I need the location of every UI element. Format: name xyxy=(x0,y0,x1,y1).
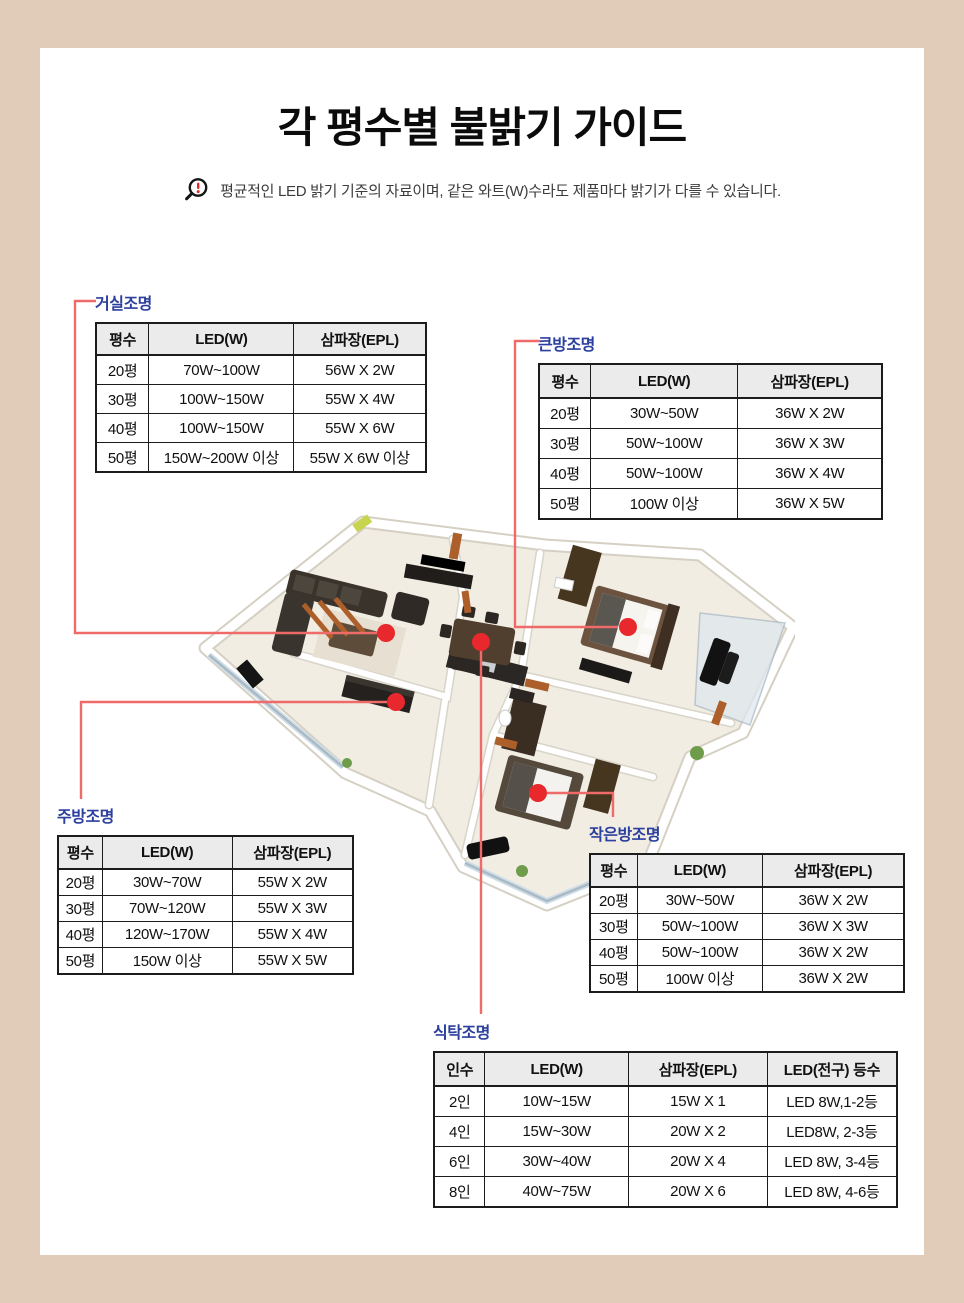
table-cell: 36W X 3W xyxy=(738,429,882,459)
table-cell: 55W X 6W 이상 xyxy=(294,443,426,473)
table-cell: 6인 xyxy=(434,1147,485,1177)
header-cell: 삼파장(EPL) xyxy=(738,364,882,398)
table-cell: 36W X 2W xyxy=(763,940,904,966)
header-cell: LED(W) xyxy=(637,854,763,887)
header-cell: 인수 xyxy=(434,1052,485,1086)
table-cell: 150W 이상 xyxy=(102,948,232,975)
header-cell: LED(W) xyxy=(102,836,232,869)
table-header-row: 인수 LED(W) 삼파장(EPL) LED(전구) 등수 xyxy=(434,1052,897,1086)
dining-table-label: 식탁조명 xyxy=(433,1019,898,1043)
table-cell: 50평 xyxy=(96,443,149,473)
small-room-table-label: 작은방조명 xyxy=(589,821,905,845)
table-cell: 55W X 3W xyxy=(232,896,353,922)
table-cell: 30W~50W xyxy=(637,887,763,914)
kitchen-table-label: 주방조명 xyxy=(57,803,354,827)
table-cell: 150W~200W 이상 xyxy=(149,443,294,473)
table-cell: 36W X 2W xyxy=(763,887,904,914)
table-cell: 10W~15W xyxy=(485,1086,629,1117)
big-room-table: 평수 LED(W) 삼파장(EPL) 20평30W~50W36W X 2W 30… xyxy=(538,363,883,520)
kitchen-table-block: 주방조명 평수 LED(W) 삼파장(EPL) 20평30W~70W55W X … xyxy=(57,803,354,975)
table-cell: 30W~40W xyxy=(485,1147,629,1177)
table-cell: 70W~120W xyxy=(102,896,232,922)
table-cell: 36W X 4W xyxy=(738,459,882,489)
table-cell: 100W 이상 xyxy=(637,966,763,993)
notice-text: 평균적인 LED 밝기 기준의 자료이며, 같은 와트(W)수라도 제품마다 밝… xyxy=(220,180,781,201)
living-table-label: 거실조명 xyxy=(95,290,427,314)
table-row: 8인40W~75W20W X 6LED 8W, 4-6등 xyxy=(434,1177,897,1208)
table-cell: 55W X 4W xyxy=(294,385,426,414)
header-cell: LED(W) xyxy=(590,364,737,398)
table-cell: 50W~100W xyxy=(637,940,763,966)
table-row: 40평50W~100W36W X 4W xyxy=(539,459,882,489)
table-cell: 30평 xyxy=(539,429,590,459)
table-cell: 100W~150W xyxy=(149,414,294,443)
header-cell: 평수 xyxy=(96,323,149,355)
table-cell: LED8W, 2-3등 xyxy=(767,1117,897,1147)
table-cell: 50W~100W xyxy=(590,429,737,459)
table-cell: 30W~50W xyxy=(590,398,737,429)
table-row: 4인15W~30W20W X 2LED8W, 2-3등 xyxy=(434,1117,897,1147)
table-row: 30평100W~150W55W X 4W xyxy=(96,385,426,414)
header-cell: 삼파장(EPL) xyxy=(294,323,426,355)
small-room-table-block: 작은방조명 평수 LED(W) 삼파장(EPL) 20평30W~50W36W X… xyxy=(589,821,905,993)
header-cell: 삼파장(EPL) xyxy=(763,854,904,887)
table-cell: 2인 xyxy=(434,1086,485,1117)
table-cell: 30평 xyxy=(590,914,637,940)
table-cell: 8인 xyxy=(434,1177,485,1208)
table-cell: 20W X 6 xyxy=(628,1177,767,1208)
header-cell: 삼파장(EPL) xyxy=(232,836,353,869)
table-cell: 40평 xyxy=(590,940,637,966)
header-cell: 평수 xyxy=(590,854,637,887)
notice: 평균적인 LED 밝기 기준의 자료이며, 같은 와트(W)수라도 제품마다 밝… xyxy=(0,176,964,204)
table-cell: 56W X 2W xyxy=(294,355,426,385)
table-header-row: 평수 LED(W) 삼파장(EPL) xyxy=(590,854,904,887)
table-cell: 55W X 2W xyxy=(232,869,353,896)
table-cell: 120W~170W xyxy=(102,922,232,948)
table-row: 30평50W~100W36W X 3W xyxy=(590,914,904,940)
table-row: 30평70W~120W55W X 3W xyxy=(58,896,353,922)
table-header-row: 평수 LED(W) 삼파장(EPL) xyxy=(539,364,882,398)
header-cell: 평수 xyxy=(539,364,590,398)
table-cell: 55W X 4W xyxy=(232,922,353,948)
dining-table-block: 식탁조명 인수 LED(W) 삼파장(EPL) LED(전구) 등수 2인10W… xyxy=(433,1019,898,1208)
table-row: 6인30W~40W20W X 4LED 8W, 3-4등 xyxy=(434,1147,897,1177)
table-cell: 20평 xyxy=(96,355,149,385)
kitchen-table: 평수 LED(W) 삼파장(EPL) 20평30W~70W55W X 2W 30… xyxy=(57,835,354,975)
table-row: 40평50W~100W36W X 2W xyxy=(590,940,904,966)
table-cell: 36W X 5W xyxy=(738,489,882,520)
table-cell: 55W X 6W xyxy=(294,414,426,443)
table-cell: 20W X 2 xyxy=(628,1117,767,1147)
header-cell: LED(W) xyxy=(485,1052,629,1086)
table-cell: 30평 xyxy=(96,385,149,414)
table-cell: 36W X 3W xyxy=(763,914,904,940)
living-table: 평수 LED(W) 삼파장(EPL) 20평70W~100W56W X 2W 3… xyxy=(95,322,427,473)
table-cell: 40평 xyxy=(539,459,590,489)
table-cell: 50평 xyxy=(58,948,102,975)
table-header-row: 평수 LED(W) 삼파장(EPL) xyxy=(96,323,426,355)
table-cell: 50W~100W xyxy=(637,914,763,940)
table-row: 20평30W~50W36W X 2W xyxy=(590,887,904,914)
table-cell: 15W X 1 xyxy=(628,1086,767,1117)
table-cell: LED 8W, 3-4등 xyxy=(767,1147,897,1177)
table-cell: 100W 이상 xyxy=(590,489,737,520)
table-cell: 40평 xyxy=(58,922,102,948)
table-row: 40평120W~170W55W X 4W xyxy=(58,922,353,948)
dining-table: 인수 LED(W) 삼파장(EPL) LED(전구) 등수 2인10W~15W1… xyxy=(433,1051,898,1208)
table-row: 2인10W~15W15W X 1LED 8W,1-2등 xyxy=(434,1086,897,1117)
table-row: 40평100W~150W55W X 6W xyxy=(96,414,426,443)
table-cell: 36W X 2W xyxy=(738,398,882,429)
table-cell: 70W~100W xyxy=(149,355,294,385)
table-cell: 50평 xyxy=(539,489,590,520)
infographic-page: { "title": "각 평수별 불밝기 가이드", "notice": { … xyxy=(0,0,964,1303)
header-cell: LED(전구) 등수 xyxy=(767,1052,897,1086)
table-cell: LED 8W, 4-6등 xyxy=(767,1177,897,1208)
table-row: 50평100W 이상36W X 5W xyxy=(539,489,882,520)
table-cell: 36W X 2W xyxy=(763,966,904,993)
table-cell: LED 8W,1-2등 xyxy=(767,1086,897,1117)
page-title: 각 평수별 불밝기 가이드 xyxy=(0,94,964,155)
table-row: 50평150W~200W 이상55W X 6W 이상 xyxy=(96,443,426,473)
living-table-block: 거실조명 평수 LED(W) 삼파장(EPL) 20평70W~100W56W X… xyxy=(95,290,427,473)
table-cell: 40평 xyxy=(96,414,149,443)
table-row: 20평30W~50W36W X 2W xyxy=(539,398,882,429)
table-cell: 30W~70W xyxy=(102,869,232,896)
table-row: 30평50W~100W36W X 3W xyxy=(539,429,882,459)
table-row: 20평30W~70W55W X 2W xyxy=(58,869,353,896)
header-cell: LED(W) xyxy=(149,323,294,355)
table-cell: 55W X 5W xyxy=(232,948,353,975)
header-cell: 평수 xyxy=(58,836,102,869)
big-room-table-block: 큰방조명 평수 LED(W) 삼파장(EPL) 20평30W~50W36W X … xyxy=(538,331,883,520)
table-header-row: 평수 LED(W) 삼파장(EPL) xyxy=(58,836,353,869)
header-cell: 삼파장(EPL) xyxy=(628,1052,767,1086)
table-cell: 20평 xyxy=(590,887,637,914)
alert-magnifier-icon xyxy=(183,176,211,204)
table-row: 50평150W 이상55W X 5W xyxy=(58,948,353,975)
small-room-table: 평수 LED(W) 삼파장(EPL) 20평30W~50W36W X 2W 30… xyxy=(589,853,905,993)
table-row: 50평100W 이상36W X 2W xyxy=(590,966,904,993)
table-cell: 4인 xyxy=(434,1117,485,1147)
table-cell: 30평 xyxy=(58,896,102,922)
table-cell: 20평 xyxy=(58,869,102,896)
big-room-table-label: 큰방조명 xyxy=(538,331,883,355)
table-cell: 50평 xyxy=(590,966,637,993)
table-row: 20평70W~100W56W X 2W xyxy=(96,355,426,385)
table-cell: 40W~75W xyxy=(485,1177,629,1208)
table-cell: 20W X 4 xyxy=(628,1147,767,1177)
table-cell: 50W~100W xyxy=(590,459,737,489)
table-cell: 15W~30W xyxy=(485,1117,629,1147)
table-cell: 100W~150W xyxy=(149,385,294,414)
table-cell: 20평 xyxy=(539,398,590,429)
